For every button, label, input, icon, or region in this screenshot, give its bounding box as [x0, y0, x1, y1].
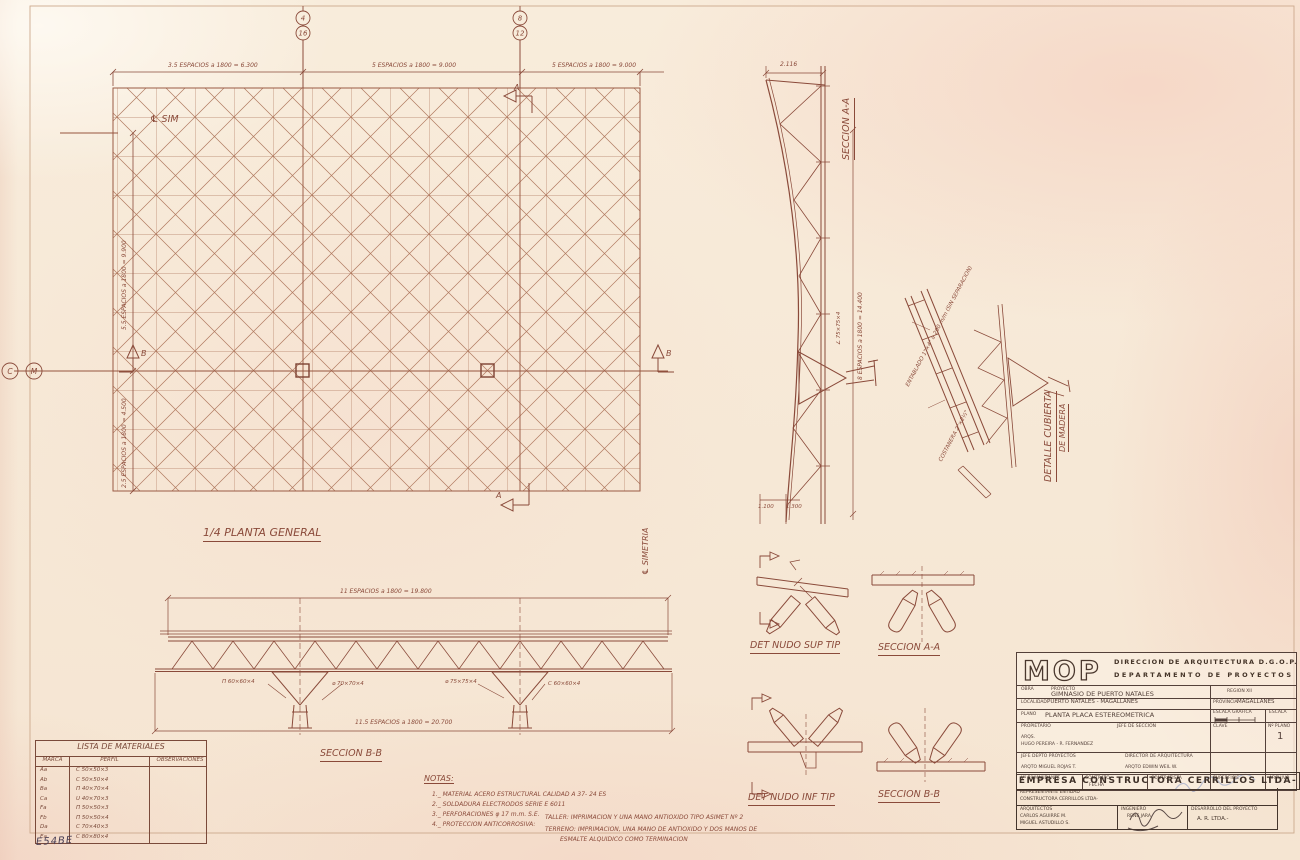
nudo-sup-seccion-title: SECCION A-A [878, 643, 940, 656]
materiales-header-perfil: PERFIL [70, 757, 150, 766]
cell-perfil: Π 50×50×3 [70, 805, 150, 815]
cubierta-title-1: DETALLE CUBIERTA [1044, 391, 1057, 482]
seccion-bb-dim-top: 11 ESPACIOS a 1800 = 19.800 [340, 589, 432, 596]
representante-value: CONSTRUCTORA CERRILLOS LTDA- [1020, 797, 1098, 802]
title-block: MOP DIRECCION DE ARQUITECTURA D.G.O.P. D… [1016, 652, 1297, 791]
arqs-line-1: ARQS. [1021, 735, 1035, 740]
cell-perfil: Π 40×70×4 [70, 786, 150, 796]
director-label: DIRECTOR DE ARQUITECTURA [1125, 754, 1193, 759]
cell-marca: Aa [36, 767, 70, 777]
nudo-sup-title: DET NUDO SUP TIP [750, 641, 840, 654]
escala-grafica-label: ESCALA GRAFICA [1213, 710, 1252, 715]
arqto-2: ARQTO EDWIN WEIL W. [1125, 765, 1177, 770]
plan-grid [14, 40, 668, 491]
seccion-bb-truss [152, 595, 675, 735]
arrow-a-bottom-label: A [495, 491, 501, 500]
materiales-header-obs: OBSERVACIONES [150, 757, 206, 766]
ingeniero-label: INGENIERO [1121, 807, 1146, 812]
propietario-label: PROPIETARIO [1021, 724, 1051, 729]
nudo-inf-seccion-title: SECCION B-B [878, 790, 940, 803]
cell-marca: Ab [36, 777, 70, 787]
seccion-aa-dim-right: 8 ESPACIOS a 1800 = 14.400 [858, 292, 865, 380]
seccion-bb-label-2: ⌀ 70×70×4 [332, 681, 364, 687]
cell-obs [150, 805, 206, 815]
nota-4-taller: TALLER: IMPRIMACION Y UNA MANO ANTIOXIDO… [545, 814, 743, 821]
seccion-aa-dim-bottom-1: 1.100 [758, 504, 774, 510]
table-row: CaU 40×70×3 [36, 796, 206, 806]
bubble-8: 8 [518, 15, 523, 23]
cell-perfil: C 70×40×3 [70, 824, 150, 834]
clave-label: CLAVE [1213, 724, 1227, 729]
table-row: AbC 50×50×4 [36, 777, 206, 787]
table-row: FbΠ 50×50×4 [36, 815, 206, 825]
provincia-value: MAGALLANES [1237, 699, 1275, 705]
cell-obs [150, 796, 206, 806]
cubierta-title-2: DE MADERA [1058, 404, 1069, 452]
cell-perfil: C 50×50×3 [70, 767, 150, 777]
seccion-aa-label-1: ∠ 75×75×4 [836, 312, 842, 345]
jefe-depto-label: JEFE DEPTO PROYECTOS [1021, 754, 1076, 759]
plan-title: 1/4 PLANTA GENERAL [203, 527, 321, 542]
cell-marca: Da [36, 824, 70, 834]
arquitecto-2: MIGUEL ASTUDILLO S. [1020, 821, 1070, 826]
cell-marca: Fb [36, 815, 70, 825]
escala-label: ESCALA [1269, 710, 1287, 715]
cell-obs [150, 824, 206, 834]
materiales-title: LISTA DE MATERIALES [36, 741, 206, 757]
arqto-1: ARQTO MIGUEL ROJAS T. [1021, 765, 1076, 770]
bubble-m: M [31, 367, 38, 376]
dim-left-1: 5.5 ESPACIOS a 1800 = 9.900 [122, 240, 129, 330]
materiales-header-marca: MARCA [36, 757, 70, 766]
nota-4-terreno-2: ESMALTE ALQUIDICO COMO TERMINACION [560, 836, 688, 843]
representante-label: REPRESENTANTE ENTIDAD [1020, 790, 1080, 795]
drawing-sheet: 4 16 8 12 C M A A B B [0, 0, 1300, 860]
nudo-inf-detail [748, 694, 862, 798]
ingeniero-value: RENE JARA [1127, 814, 1151, 819]
cell-perfil: U 40×70×3 [70, 796, 150, 806]
dim-top-3: 5 ESPACIOS a 1800 = 9.000 [552, 63, 636, 70]
seccion-aa-title: SECCION A-A [842, 98, 855, 160]
nota-4-terreno-1: TERRENO: IMPRIMACION, UNA MANO DE ANTIOX… [545, 826, 757, 833]
localidad-value: PUERTO NATALES - MAGALLANES [1047, 699, 1138, 705]
cell-obs [150, 767, 206, 777]
dim-left-2: 2.5 ESPACIOS a 1800 = 4.500 [122, 398, 129, 488]
cell-marca: Ba [36, 786, 70, 796]
materiales-header-row: MARCA PERFIL OBSERVACIONES [36, 757, 206, 767]
bubble-12: 12 [516, 30, 525, 38]
arquitecto-1: CARLOS AGUIRRE M. [1020, 814, 1066, 819]
arrow-b-left-label: B [141, 349, 147, 358]
centerline-sim-label: ℄ SIM [150, 115, 179, 126]
arquitectos-label: ARQUITECTOS [1020, 807, 1052, 812]
contractor-block: EMPRESA CONSTRUCTORA CERRILLOS LTDA- REP… [1016, 772, 1300, 830]
plano-label: PLANO [1021, 712, 1036, 717]
desarrollo-value: A. R. LTDA.- [1197, 816, 1229, 822]
cell-obs [150, 815, 206, 825]
provincia-label: PROVINCIA [1213, 700, 1238, 705]
bubble-c: C [7, 367, 13, 376]
num-plano-value: 1 [1277, 731, 1283, 742]
notas-title: NOTAS: [424, 774, 454, 784]
cell-perfil: C 50×50×4 [70, 777, 150, 787]
arqs-line-2: HUGO PEREIRA - R. FERNANDEZ [1021, 742, 1093, 747]
handwritten-code: E54BE [36, 835, 74, 848]
arrow-b-right-label: B [666, 349, 672, 358]
table-row: FaΠ 50×50×3 [36, 805, 206, 815]
seccion-bb-label-1: Π 60×60×4 [222, 679, 255, 685]
dim-top-1: 3.5 ESPACIOS a 1800 = 6.300 [168, 63, 258, 70]
cell-obs [150, 786, 206, 796]
contractor-table: REPRESENTANTE ENTIDAD CONSTRUCTORA CERRI… [1016, 788, 1278, 830]
table-row: AaC 50×50×3 [36, 767, 206, 777]
table-row: DaC 70×40×3 [36, 824, 206, 834]
bubble-4: 4 [301, 15, 305, 23]
cell-perfil: Π 50×50×4 [70, 815, 150, 825]
localidad-label: LOCALIDAD [1021, 700, 1047, 705]
region-value: REGION XII [1227, 689, 1252, 694]
jefe-seccion-label: JEFE DE SECCION [1117, 724, 1156, 729]
seccion-aa-dim-top: 2.116 [780, 62, 797, 69]
seccion-aa-dim-bottom-2: 1.300 [786, 504, 802, 510]
plano-value: PLANTA PLACA ESTEREOMETRICA [1045, 711, 1154, 719]
cell-perfil: C 80×80×4 [70, 834, 150, 844]
svg-text:MOP: MOP [1023, 656, 1102, 685]
seccion-bb-label-4: C 60×60×4 [548, 681, 580, 687]
seccion-aa-nudo-detail [872, 566, 974, 642]
cell-marca: Ca [36, 796, 70, 806]
seccion-bb-nudo-detail [877, 708, 985, 782]
seccion-bb-dim-bottom: 11.5 ESPACIOS a 1800 = 20.700 [355, 720, 452, 727]
desarrollo-label: DESARROLLO DEL PROYECTO [1191, 807, 1257, 812]
nudo-inf-title: DET NUDO INF TIP [748, 793, 835, 806]
mop-logo: MOP [1019, 655, 1111, 685]
centerline-simetria-label: ℄ SIMETRIA [641, 528, 650, 575]
num-plano-label: Nº PLANO [1268, 724, 1290, 729]
dim-top-2: 5 ESPACIOS a 1800 = 9.000 [372, 63, 456, 70]
cell-obs [150, 834, 206, 844]
seccion-bb-title: SECCION B-B [320, 749, 382, 762]
nudo-sup-detail [757, 552, 848, 637]
nota-1: 1._ MATERIAL ACERO ESTRUCTURAL CALIDAD A… [432, 791, 606, 798]
arrow-a-top-label: A [513, 83, 519, 92]
bubble-16: 16 [299, 30, 308, 38]
lista-de-materiales-table: LISTA DE MATERIALES MARCA PERFIL OBSERVA… [35, 740, 207, 844]
org-line-2: DEPARTAMENTO DE PROYECTOS [1114, 671, 1294, 679]
nota-2: 2._ SOLDADURA ELECTRODOS SERIE E 6011 [432, 801, 606, 808]
org-line-1: DIRECCION DE ARQUITECTURA D.G.O.P. [1114, 658, 1298, 666]
escala-grafica-bar [1213, 716, 1259, 724]
obra-value: GIMNASIO DE PUERTO NATALES [1051, 690, 1154, 698]
cell-marca: Fa [36, 805, 70, 815]
table-row: BaΠ 40×70×4 [36, 786, 206, 796]
obra-label: OBRA [1021, 687, 1034, 692]
cell-obs [150, 777, 206, 787]
seccion-bb-label-3: ⌀ 75×75×4 [445, 679, 477, 685]
